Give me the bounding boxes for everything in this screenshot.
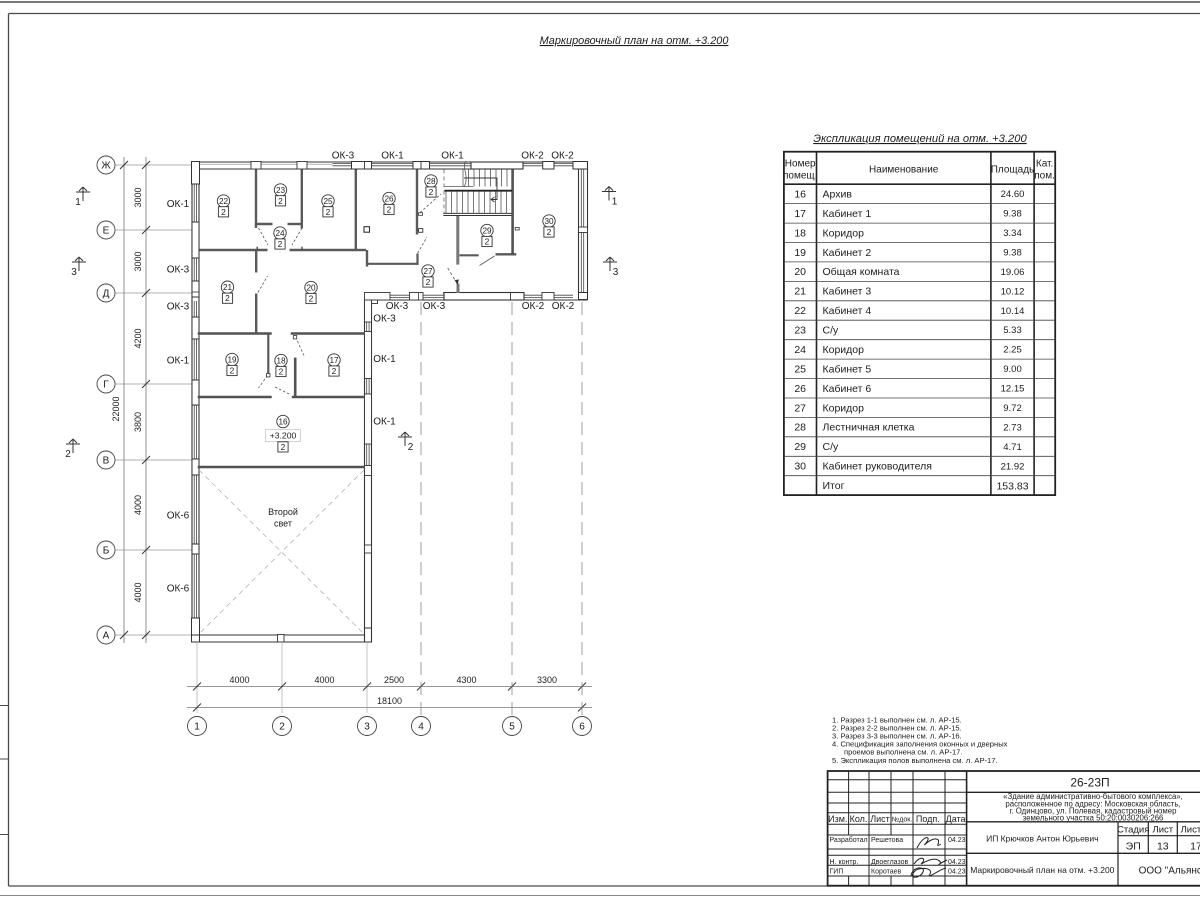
- svg-text:2: 2: [230, 366, 235, 376]
- svg-text:10.12: 10.12: [1001, 286, 1025, 297]
- svg-text:30: 30: [794, 461, 806, 473]
- svg-text:Второй: Второй: [268, 507, 298, 517]
- svg-text:ОК-3: ОК-3: [167, 302, 190, 313]
- svg-text:2: 2: [65, 449, 71, 460]
- svg-text:04.23: 04.23: [948, 837, 966, 844]
- svg-text:ОК-2: ОК-2: [522, 301, 545, 312]
- svg-text:+3.200: +3.200: [270, 430, 297, 440]
- svg-text:3: 3: [613, 267, 619, 278]
- svg-text:24.60: 24.60: [1001, 189, 1025, 200]
- svg-text:4000: 4000: [229, 675, 249, 685]
- svg-text:А: А: [103, 631, 110, 642]
- svg-text:Двоеглазов: Двоеглазов: [871, 859, 908, 866]
- svg-text:22000: 22000: [111, 396, 121, 421]
- svg-text:Наименование: Наименование: [869, 165, 939, 176]
- svg-text:Маркировочный план на отм. +3.: Маркировочный план на отм. +3.200: [970, 865, 1114, 875]
- svg-text:Лист: Лист: [870, 814, 890, 824]
- svg-text:земельного участка 50:20:00302: земельного участка 50:20:0030206:266: [1023, 813, 1164, 822]
- svg-text:Кол.: Кол.: [850, 814, 868, 824]
- svg-text:22: 22: [794, 305, 806, 317]
- svg-text:Г: Г: [103, 380, 109, 391]
- svg-text:10.14: 10.14: [1001, 306, 1025, 317]
- svg-text:4300: 4300: [456, 675, 476, 685]
- svg-text:5: 5: [509, 722, 515, 733]
- svg-text:12.15: 12.15: [1001, 384, 1025, 395]
- svg-text:18: 18: [794, 227, 806, 239]
- svg-text:6: 6: [579, 722, 585, 733]
- svg-text:Лист: Лист: [1152, 824, 1173, 835]
- svg-text:ГИП: ГИП: [830, 869, 844, 876]
- svg-text:Разработал: Разработал: [830, 836, 868, 844]
- svg-text:№док.: №док.: [892, 816, 913, 823]
- svg-text:21.92: 21.92: [1001, 461, 1025, 472]
- svg-text:19: 19: [227, 355, 237, 364]
- svg-text:ИП Крючков Антон Юрьевич: ИП Крючков Антон Юрьевич: [986, 834, 1098, 844]
- svg-text:ОК-1: ОК-1: [167, 356, 190, 367]
- svg-text:ОК-1: ОК-1: [373, 354, 396, 365]
- svg-text:5. Экспликация полов выполнена: 5. Экспликация полов выполнена см. л. АР…: [832, 756, 998, 765]
- svg-text:4000: 4000: [133, 582, 143, 602]
- svg-text:153.83: 153.83: [996, 481, 1028, 493]
- svg-text:Подп.: Подп.: [916, 814, 940, 824]
- svg-text:2.25: 2.25: [1003, 345, 1022, 356]
- svg-text:2: 2: [278, 239, 283, 249]
- svg-text:4200: 4200: [133, 328, 143, 348]
- svg-text:ОК-1: ОК-1: [167, 199, 190, 210]
- svg-text:3000: 3000: [133, 251, 143, 271]
- svg-text:2: 2: [387, 205, 392, 215]
- svg-text:Кат.: Кат.: [1036, 159, 1053, 170]
- svg-text:13: 13: [1157, 841, 1169, 853]
- svg-text:2: 2: [279, 722, 285, 733]
- svg-text:5.33: 5.33: [1003, 325, 1022, 336]
- svg-text:ОК-3: ОК-3: [167, 265, 190, 276]
- svg-text:4000: 4000: [314, 675, 334, 685]
- svg-text:2: 2: [281, 442, 286, 452]
- svg-text:29: 29: [794, 441, 806, 453]
- svg-text:19: 19: [794, 247, 806, 259]
- svg-text:26-23П: 26-23П: [1070, 776, 1109, 790]
- svg-text:Кабинет руководителя: Кабинет руководителя: [823, 461, 932, 473]
- svg-text:2.73: 2.73: [1003, 422, 1022, 433]
- svg-text:Изм.: Изм.: [828, 814, 847, 824]
- svg-text:Номер: Номер: [785, 159, 816, 170]
- svg-text:1: 1: [75, 197, 81, 208]
- svg-text:2: 2: [278, 196, 283, 206]
- svg-text:9.38: 9.38: [1003, 248, 1022, 259]
- svg-text:21: 21: [223, 283, 233, 292]
- svg-text:29: 29: [482, 226, 492, 235]
- svg-text:23: 23: [794, 325, 806, 337]
- svg-text:24: 24: [794, 344, 806, 356]
- svg-text:Площадь: Площадь: [991, 165, 1035, 176]
- svg-text:30: 30: [544, 217, 554, 226]
- svg-text:9.38: 9.38: [1003, 209, 1022, 220]
- svg-text:ОК-3: ОК-3: [332, 151, 355, 162]
- svg-text:24: 24: [275, 229, 285, 238]
- svg-text:17: 17: [329, 356, 339, 365]
- svg-text:2500: 2500: [384, 675, 404, 685]
- svg-text:С/у: С/у: [823, 325, 840, 337]
- svg-text:23: 23: [276, 186, 286, 195]
- svg-text:Лестничная клетка: Лестничная клетка: [823, 422, 915, 434]
- svg-text:Кабинет 4: Кабинет 4: [823, 305, 872, 317]
- svg-text:ОК-3: ОК-3: [386, 301, 409, 312]
- svg-text:3000: 3000: [133, 187, 143, 207]
- svg-text:25: 25: [794, 363, 806, 375]
- svg-text:Кабинет 6: Кабинет 6: [823, 383, 872, 395]
- svg-text:ОК-1: ОК-1: [381, 151, 404, 162]
- svg-text:1: 1: [194, 722, 200, 733]
- svg-text:18100: 18100: [377, 696, 402, 706]
- svg-text:ОК-1: ОК-1: [373, 417, 396, 428]
- svg-text:Маркировочный план на отм. +3.: Маркировочный план на отм. +3.200: [540, 35, 729, 47]
- svg-text:Ж: Ж: [101, 161, 111, 172]
- svg-text:Б: Б: [103, 546, 110, 557]
- svg-text:2: 2: [547, 227, 552, 237]
- svg-text:С/у: С/у: [823, 441, 840, 453]
- svg-text:2: 2: [426, 277, 431, 287]
- svg-text:ООО "Альянс": ООО "Альянс": [1139, 866, 1200, 877]
- svg-text:26: 26: [794, 383, 806, 395]
- svg-text:2: 2: [309, 294, 314, 304]
- svg-text:ОК-1: ОК-1: [441, 151, 464, 162]
- svg-text:ОК-6: ОК-6: [167, 511, 190, 522]
- svg-text:ОК-3: ОК-3: [373, 314, 396, 325]
- svg-text:Коридор: Коридор: [823, 227, 865, 239]
- svg-text:Дата: Дата: [946, 814, 966, 824]
- svg-text:20: 20: [306, 283, 316, 292]
- svg-text:В: В: [103, 456, 110, 467]
- svg-text:Н. контр.: Н. контр.: [830, 859, 859, 866]
- svg-text:04.23: 04.23: [948, 859, 966, 866]
- svg-text:2: 2: [221, 207, 226, 217]
- svg-text:4: 4: [418, 722, 424, 733]
- svg-text:3.34: 3.34: [1003, 228, 1022, 239]
- svg-text:4000: 4000: [133, 495, 143, 515]
- svg-text:28: 28: [794, 422, 806, 434]
- svg-text:Общая комната: Общая комната: [823, 266, 900, 278]
- svg-text:ЭП: ЭП: [1126, 841, 1141, 853]
- svg-text:2: 2: [429, 187, 434, 197]
- svg-text:3: 3: [364, 722, 370, 733]
- svg-text:Экспликация помещений на отм.: Экспликация помещений на отм. +3.200: [813, 133, 1027, 145]
- svg-text:Итог: Итог: [823, 480, 845, 492]
- svg-text:Е: Е: [103, 226, 110, 237]
- svg-text:1: 1: [612, 197, 618, 208]
- svg-text:16: 16: [794, 189, 806, 201]
- svg-text:ОК-2: ОК-2: [552, 301, 575, 312]
- svg-text:26: 26: [384, 194, 394, 203]
- svg-text:2: 2: [332, 366, 337, 376]
- svg-text:9.00: 9.00: [1003, 364, 1022, 375]
- svg-text:2: 2: [408, 442, 414, 453]
- svg-text:помещ.: помещ.: [783, 171, 817, 182]
- svg-text:17: 17: [1190, 841, 1200, 853]
- svg-text:9.72: 9.72: [1003, 403, 1022, 414]
- svg-text:25: 25: [323, 197, 333, 206]
- svg-text:21: 21: [794, 286, 806, 298]
- svg-text:16: 16: [278, 417, 288, 426]
- svg-text:2: 2: [326, 207, 331, 217]
- svg-text:22: 22: [219, 197, 229, 206]
- svg-text:Стадия: Стадия: [1117, 824, 1149, 835]
- svg-text:ОК-2: ОК-2: [551, 151, 574, 162]
- svg-text:Листов: Листов: [1181, 824, 1200, 835]
- svg-text:ОК-6: ОК-6: [167, 584, 190, 595]
- svg-text:Архив: Архив: [823, 189, 853, 201]
- svg-text:2: 2: [225, 293, 230, 303]
- svg-text:04.23: 04.23: [948, 869, 966, 876]
- svg-text:Коридор: Коридор: [823, 344, 865, 356]
- svg-text:Кабинет 1: Кабинет 1: [823, 208, 872, 220]
- svg-text:2: 2: [279, 367, 284, 377]
- svg-text:3: 3: [71, 267, 77, 278]
- svg-text:Коридор: Коридор: [823, 402, 865, 414]
- svg-text:ОК-3: ОК-3: [423, 301, 446, 312]
- svg-text:20: 20: [794, 266, 806, 278]
- svg-text:4.71: 4.71: [1003, 442, 1022, 453]
- svg-text:19.06: 19.06: [1001, 267, 1025, 278]
- svg-text:Кабинет 2: Кабинет 2: [823, 247, 872, 259]
- svg-text:свет: свет: [274, 519, 292, 529]
- svg-text:27: 27: [423, 267, 433, 276]
- svg-text:2: 2: [485, 237, 490, 247]
- svg-text:17: 17: [794, 208, 806, 220]
- svg-text:3800: 3800: [133, 412, 143, 432]
- svg-text:28: 28: [426, 177, 436, 186]
- svg-text:Коротаев: Коротаев: [871, 869, 902, 876]
- svg-text:Решетова: Решетова: [871, 837, 903, 844]
- svg-text:ОК-2: ОК-2: [521, 151, 544, 162]
- svg-text:27: 27: [794, 402, 806, 414]
- svg-text:3300: 3300: [537, 675, 557, 685]
- svg-text:18: 18: [276, 356, 286, 365]
- svg-text:Д: Д: [103, 289, 110, 300]
- svg-text:пом.: пом.: [1034, 171, 1055, 182]
- svg-text:Кабинет 5: Кабинет 5: [823, 363, 872, 375]
- svg-text:Кабинет 3: Кабинет 3: [823, 286, 872, 298]
